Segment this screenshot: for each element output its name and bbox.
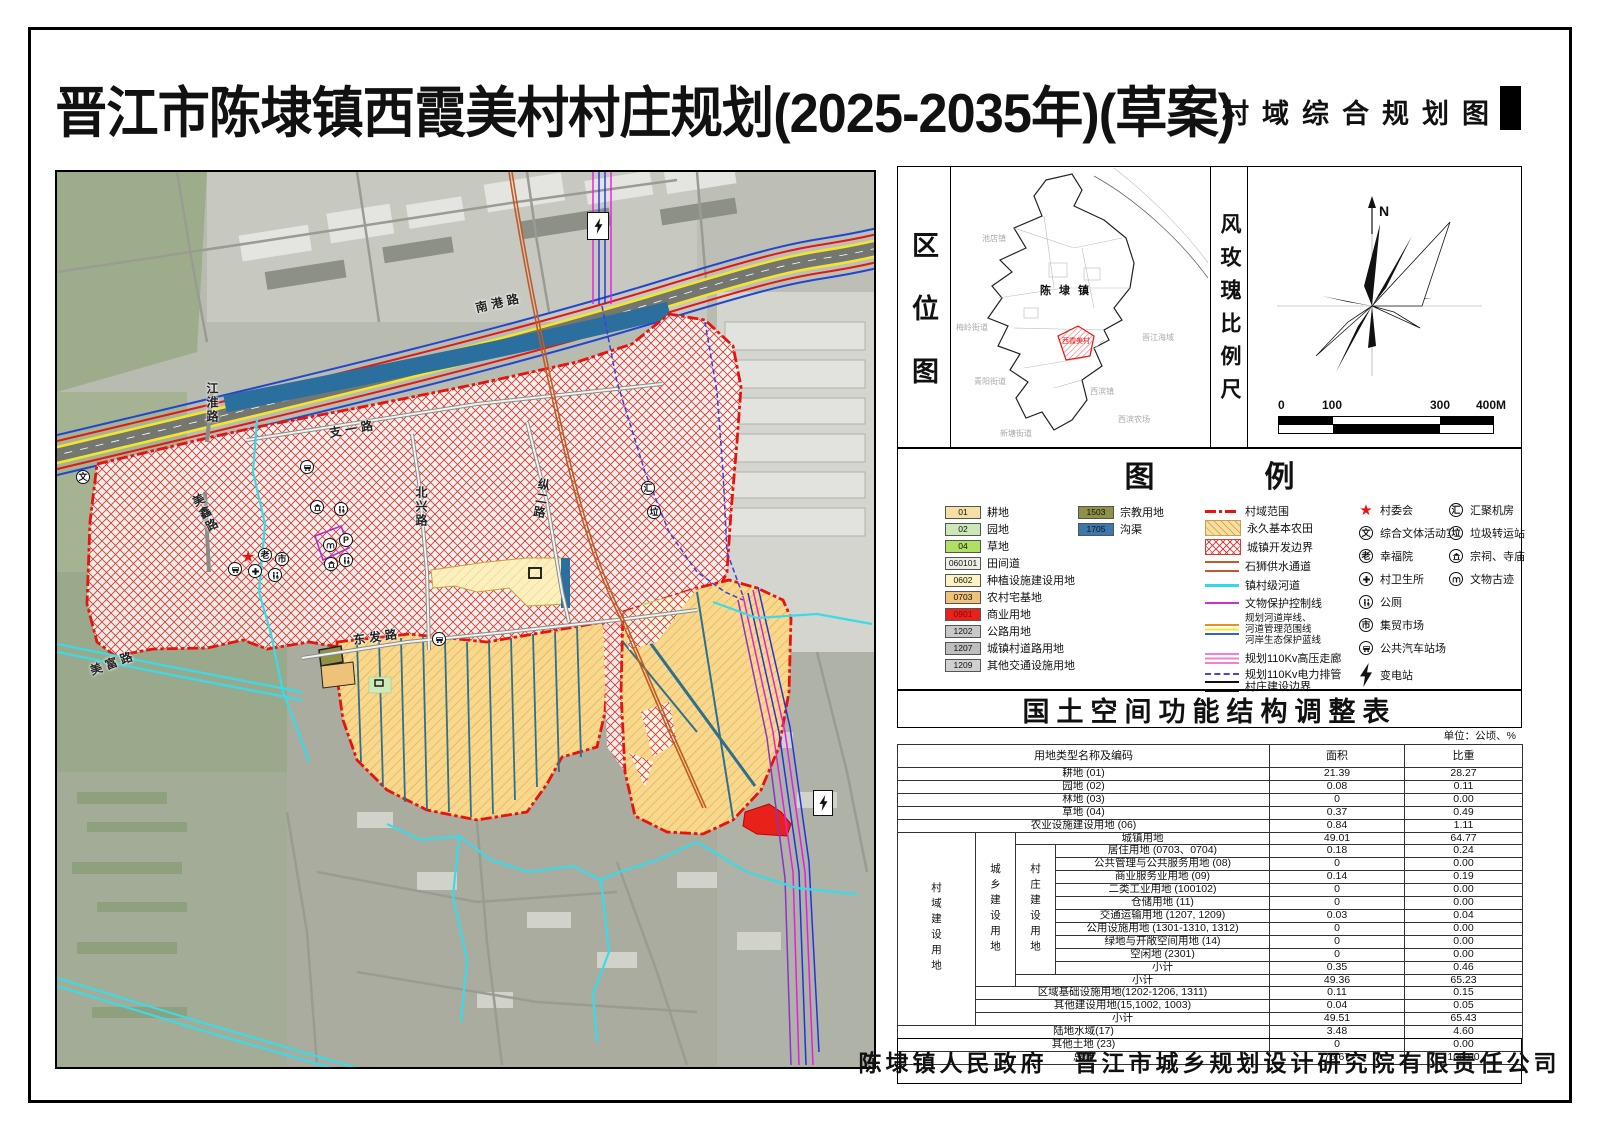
culture-room-icon: 文 (76, 470, 90, 484)
group-urban-rural: 城乡建设用地 (976, 832, 1016, 987)
land-code-chip: 060101 (945, 557, 981, 570)
land-label: 园地 (987, 521, 1009, 537)
land-label: 耕地 (987, 504, 1009, 520)
heritage-relic-icon (1449, 572, 1463, 586)
land-label: 其他交通设施用地 (987, 657, 1075, 673)
temple-icon (1449, 549, 1463, 563)
table-row: 农业设施建设用地 (06)0.841.11 (898, 819, 1523, 832)
culture-room-icon: 文 (1359, 526, 1373, 540)
basic-farmland-swatch (1205, 520, 1241, 536)
table-row: 耕地 (01)21.3928.27 (898, 768, 1523, 781)
power-duct-swatch (1205, 673, 1239, 675)
group-village-construction: 村庄建设用地 (1016, 845, 1056, 974)
table-row: 林地 (03)00.00 (898, 793, 1523, 806)
clinic-icon (1359, 572, 1373, 586)
town-river-swatch (1205, 584, 1239, 587)
land-code-chip: 02 (945, 523, 981, 536)
table-header-row: 用地类型名称及编码面积比重 (898, 745, 1523, 768)
table-row: 陆地水域(17)3.484.60 (898, 1026, 1523, 1039)
point-label: 文物古迹 (1470, 571, 1514, 587)
table-row: 其他建设用地(15,1002, 1003)0.040.05 (898, 1000, 1523, 1013)
point-label: 公共汽车站场 (1380, 640, 1446, 656)
heritage-line-swatch (1205, 602, 1239, 605)
scale-tick: 400M (1476, 398, 1506, 412)
location-map (954, 168, 1208, 446)
line-label: 规划110Kv高压走廊 (1245, 650, 1341, 666)
land-use-table: 用地类型名称及编码面积比重 耕地 (01)21.3928.27 园地 (02)0… (897, 744, 1522, 1065)
land-label: 草地 (987, 538, 1009, 554)
line-label: 村域范围 (1245, 503, 1289, 519)
neighbor-label: 新塘街道 (1000, 428, 1032, 439)
neighbor-label: 晋江海域 (1142, 332, 1174, 343)
land-label: 种植设施建设用地 (987, 572, 1075, 588)
point-label: 集贸市场 (1380, 617, 1424, 633)
table-row: 小计49.5165.43 (898, 1013, 1523, 1026)
point-label: 宗祠、寺庙 (1470, 548, 1525, 564)
public-toilet-icon (339, 553, 353, 567)
line-label: 文物保护控制线 (1245, 595, 1322, 611)
point-label: 汇聚机房 (1470, 502, 1514, 518)
bus-station-icon (432, 632, 446, 646)
server-room-icon: 汇 (641, 481, 655, 495)
point-label: 幸福院 (1380, 548, 1413, 564)
table-row: 村域建设用地 城乡建设用地 城镇用地49.0164.77 (898, 832, 1523, 845)
hv-corridor-swatch (1205, 653, 1239, 664)
point-label: 垃圾转运站 (1470, 525, 1525, 541)
clinic-icon (248, 564, 262, 578)
neighbor-label: 青阳街道 (974, 376, 1006, 387)
neighbor-label: 梅岭街道 (956, 322, 988, 333)
neighbor-label: 池店镇 (982, 233, 1006, 244)
town-label: 陈埭镇 (1040, 282, 1097, 298)
neighbor-label: 西滨镇 (1090, 386, 1114, 397)
garbage-transfer-icon: 垃 (1449, 526, 1463, 540)
land-code-chip: 1503 (1078, 506, 1114, 519)
temple-icon (310, 500, 324, 514)
public-toilet-icon (268, 568, 282, 582)
land-code-chip: 0703 (945, 591, 981, 604)
land-code-chip: 1209 (945, 659, 981, 672)
land-label: 城镇村道路用地 (987, 640, 1064, 656)
public-toilet-icon (334, 502, 348, 516)
server-room-icon: 汇 (1449, 503, 1463, 517)
footer-organizations: 陈埭镇人民政府 晋江市城乡规划设计研究院有限责任公司 (897, 1038, 1522, 1084)
heritage-relic-icon (323, 538, 337, 552)
road-label-jianghuai: 江淮路 (204, 382, 221, 424)
table-unit-note: 单位：公顷、% (897, 728, 1522, 743)
land-label: 田间道 (987, 555, 1020, 571)
table-row: 区域基础设施用地(1202-1206, 1311)0.110.15 (898, 987, 1523, 1000)
bus-station-icon (1359, 641, 1373, 655)
sheet-subtitle: 村域综合规划图 (1222, 92, 1502, 131)
point-label: 公厕 (1380, 594, 1402, 610)
substation-icon (813, 790, 833, 816)
market-icon: 市 (275, 552, 289, 566)
scale-tick: 0 (1278, 398, 1285, 412)
wind-rose: N (1252, 176, 1502, 386)
title-end-block (1500, 86, 1521, 130)
public-toilet-icon (1359, 595, 1373, 609)
welfare-home-icon: 老 (1359, 549, 1373, 563)
temple-icon (324, 557, 338, 571)
table-row: 园地 (02)0.080.11 (898, 780, 1523, 793)
plan-sheet: 晋江市陈埭镇西霞美村村庄规划(2025-2035年)(草案) 村域综合规划图 (0, 0, 1600, 1131)
table-row: 草地 (04)0.370.49 (898, 806, 1523, 819)
scale-tick: 300 (1430, 398, 1450, 412)
line-label: 石狮供水通道 (1245, 558, 1311, 574)
scale-tick: 100 (1322, 398, 1342, 412)
land-code-chip: 1207 (945, 642, 981, 655)
substation-icon (587, 212, 609, 240)
village-label: 西霞美村 (1062, 336, 1090, 346)
line-label: 城镇开发边界 (1247, 539, 1313, 555)
north-label: N (1379, 203, 1389, 219)
road-label-beixing: 北兴路 (413, 486, 430, 528)
land-label: 公路用地 (987, 623, 1031, 639)
bus-station-icon (300, 460, 314, 474)
point-label: 变电站 (1380, 667, 1413, 683)
land-label: 农村宅基地 (987, 589, 1042, 605)
garbage-transfer-icon: 垃 (647, 505, 661, 519)
scale-bar: 0 100 300 400M (1278, 398, 1500, 440)
land-label: 沟渠 (1120, 521, 1142, 537)
map-canvas (57, 172, 874, 1067)
market-icon: 市 (1359, 618, 1373, 632)
legend-title: 图例 (897, 452, 1522, 496)
land-code-chip: 04 (945, 540, 981, 553)
land-code-chip: 1705 (1078, 523, 1114, 536)
line-label: 永久基本农田 (1247, 520, 1313, 536)
bus-station-icon (228, 562, 242, 576)
point-label: 村委会 (1380, 502, 1413, 518)
line-label: 镇村级河道 (1245, 577, 1300, 593)
line-label: 规划河道岸线、 河道管理范围线 河岸生态保护蓝线 (1245, 613, 1321, 646)
point-label: 村卫生所 (1380, 571, 1424, 587)
village-committee-icon: ★ (1359, 503, 1372, 518)
welfare-home-icon: 老 (258, 548, 272, 562)
land-code-chip: 01 (945, 506, 981, 519)
page-title: 晋江市陈埭镇西霞美村村庄规划(2025-2035年)(草案) (55, 68, 1157, 148)
water-supply-swatch (1205, 561, 1239, 572)
parking-icon: P (339, 533, 353, 547)
urban-boundary-swatch (1205, 539, 1241, 555)
group-village-domain: 村域建设用地 (898, 832, 976, 1026)
location-panel-label: 区位图 (897, 166, 951, 448)
land-code-chip: 1202 (945, 625, 981, 638)
land-code-chip: 0602 (945, 574, 981, 587)
point-label: 综合文体活动室 (1380, 525, 1457, 541)
rose-scale-label: 风玫瑰比例尺 (1210, 166, 1248, 448)
land-code-chip: 0901 (945, 608, 981, 621)
land-label: 宗教用地 (1120, 504, 1164, 520)
table-title: 国土空间功能结构调整表 (897, 690, 1522, 728)
village-plan-map: 南港路 江淮路 支一路 北兴路 纵二路 东发路 美鑫路 美富路 ★ 老 市 P … (55, 170, 876, 1069)
river-plan-swatch (1205, 624, 1239, 635)
substation-icon (1358, 663, 1374, 687)
neighbor-label: 西滨农场 (1118, 414, 1150, 425)
village-extent-swatch (1205, 510, 1239, 513)
land-label: 商业用地 (987, 606, 1031, 622)
